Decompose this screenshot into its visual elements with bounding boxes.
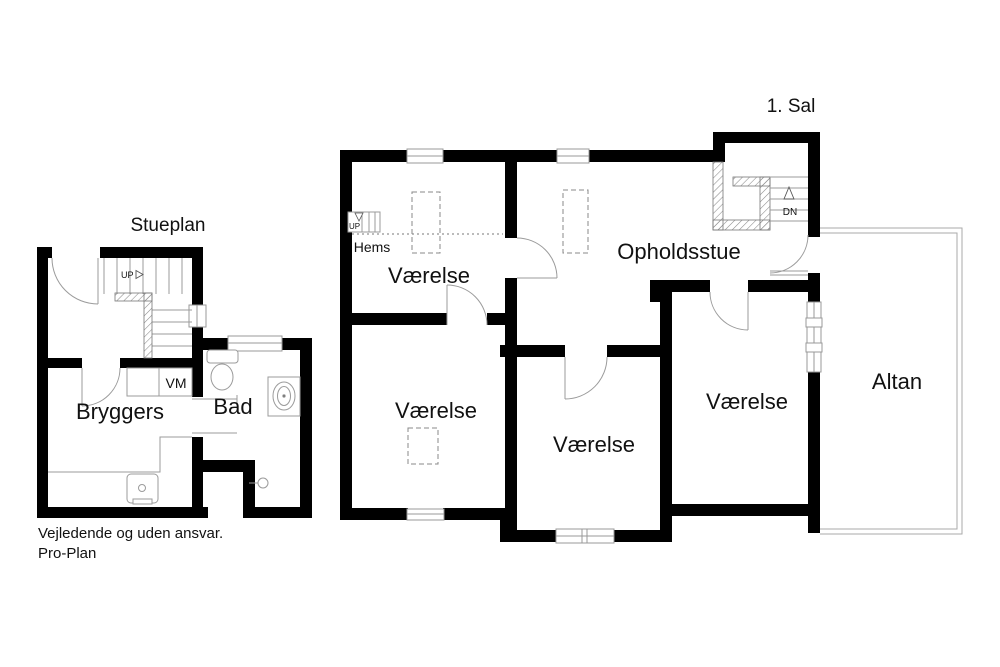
room-label-altan: Altan	[872, 369, 922, 394]
window-east	[806, 302, 822, 372]
room-label-vaerelse-top-left: Værelse	[388, 263, 470, 288]
room-label-opholdsstue: Opholdsstue	[617, 239, 741, 264]
stairwell-wall-hatched	[713, 162, 770, 230]
window-south-west	[407, 509, 444, 520]
skylight-opholdsstue	[563, 190, 588, 253]
hems-up-label: UP	[349, 222, 360, 231]
window-north-east	[557, 149, 589, 163]
disclaimer-text: Vejledende og uden ansvar.	[38, 525, 223, 542]
middle-room-door	[565, 357, 607, 399]
stair-treads-upper	[104, 258, 182, 294]
room-label-bad: Bad	[213, 394, 252, 419]
floor-plan-drawing: UP	[0, 0, 1000, 667]
room-label-bryggers: Bryggers	[76, 399, 164, 424]
brand-text: Pro-Plan	[38, 545, 96, 562]
first-floor-plan: DN UP	[340, 96, 962, 543]
bryggers-counter	[48, 437, 192, 472]
bad-sink-icon	[268, 377, 300, 416]
first-floor-stairwell: DN	[713, 162, 808, 230]
skylight-top-left	[412, 192, 440, 253]
room-label-vaerelse-bottom-middle: Værelse	[553, 432, 635, 457]
floor-plan-page: UP	[0, 0, 1000, 667]
window-bad-north	[228, 336, 282, 351]
window-south-middle	[556, 529, 614, 543]
ground-floor-fixtures	[48, 350, 300, 504]
toilet-icon	[207, 350, 238, 390]
window-north-west	[407, 149, 443, 163]
right-room-door	[710, 292, 748, 330]
stairs-direction-arrow-icon	[784, 187, 794, 199]
stairs-up-label: UP	[121, 270, 134, 280]
stair-wall-hatched	[115, 293, 152, 358]
stair-treads-lower	[152, 310, 192, 346]
top-left-room-door	[447, 285, 487, 325]
opholdsstue-door	[517, 238, 557, 278]
room-label-vaerelse-bottom-left: Værelse	[395, 398, 477, 423]
washing-machine-label: VM	[166, 375, 187, 391]
ground-floor-stairs	[104, 258, 192, 358]
stairs-up-arrow-icon	[136, 271, 143, 279]
footer: Vejledende og uden ansvar. Pro-Plan	[38, 525, 223, 562]
first-floor-title: 1. Sal	[767, 96, 816, 117]
bryggers-sink-icon	[127, 474, 158, 504]
stairs-dn-label: DN	[783, 207, 797, 218]
ground-floor-plan: UP	[37, 215, 312, 518]
room-label-vaerelse-right: Værelse	[706, 389, 788, 414]
window-stair-east	[189, 305, 206, 327]
room-label-hems: Hems	[354, 239, 391, 255]
ground-floor-title: Stueplan	[130, 215, 205, 236]
skylight-bottom-left	[408, 428, 438, 464]
entry-door	[52, 258, 98, 304]
balcony-door	[770, 235, 808, 275]
